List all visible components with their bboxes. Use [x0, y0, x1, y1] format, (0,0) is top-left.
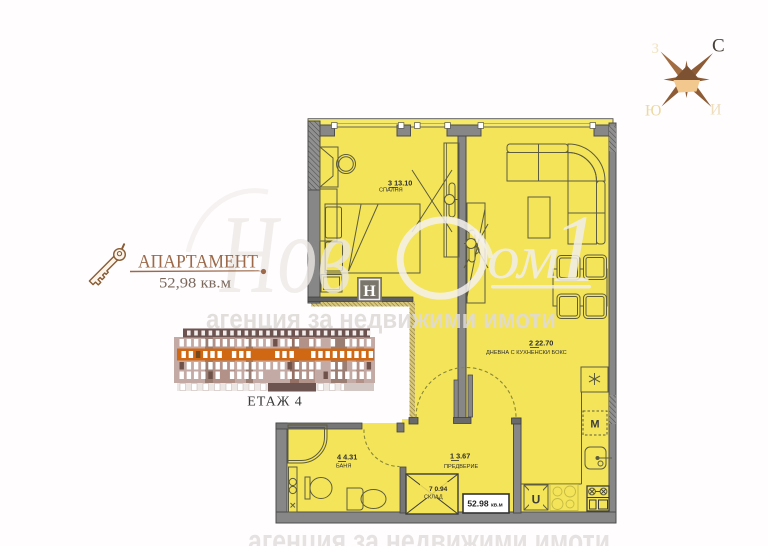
svg-text:агенция за недвижими имоти: агенция за недвижими имоти: [248, 523, 610, 546]
svg-text:M: M: [590, 419, 599, 431]
svg-text:2 22.70: 2 22.70: [529, 339, 553, 348]
svg-text:СКЛАД: СКЛАД: [424, 495, 443, 501]
svg-text:И: И: [710, 102, 722, 119]
svg-text:СПАЛНЯ: СПАЛНЯ: [379, 188, 403, 194]
svg-text:3 13.10: 3 13.10: [388, 179, 412, 188]
svg-text:ПРЕДВЕРИЕ: ПРЕДВЕРИЕ: [444, 464, 478, 470]
svg-text:ДНЕВНА С КУХНЕНСКИ БОКС: ДНЕВНА С КУХНЕНСКИ БОКС: [486, 350, 567, 356]
svg-text:Н: Н: [363, 283, 376, 300]
svg-text:БАНЯ: БАНЯ: [336, 464, 351, 470]
svg-text:ом: ом: [487, 224, 559, 292]
svg-text:U: U: [532, 493, 541, 507]
svg-text:Ю: Ю: [645, 103, 661, 120]
svg-text:З: З: [652, 41, 660, 57]
svg-text:52,98 кв.м: 52,98 кв.м: [159, 276, 232, 292]
svg-text:С: С: [712, 36, 725, 57]
svg-text:7 0.94: 7 0.94: [429, 486, 448, 493]
svg-text:ЕТАЖ 4: ЕТАЖ 4: [247, 395, 303, 410]
svg-text:4 4.31: 4 4.31: [337, 453, 357, 462]
svg-text:АПАРТАМЕНТ: АПАРТАМЕНТ: [138, 252, 258, 273]
svg-text:1 3.67: 1 3.67: [450, 452, 470, 461]
